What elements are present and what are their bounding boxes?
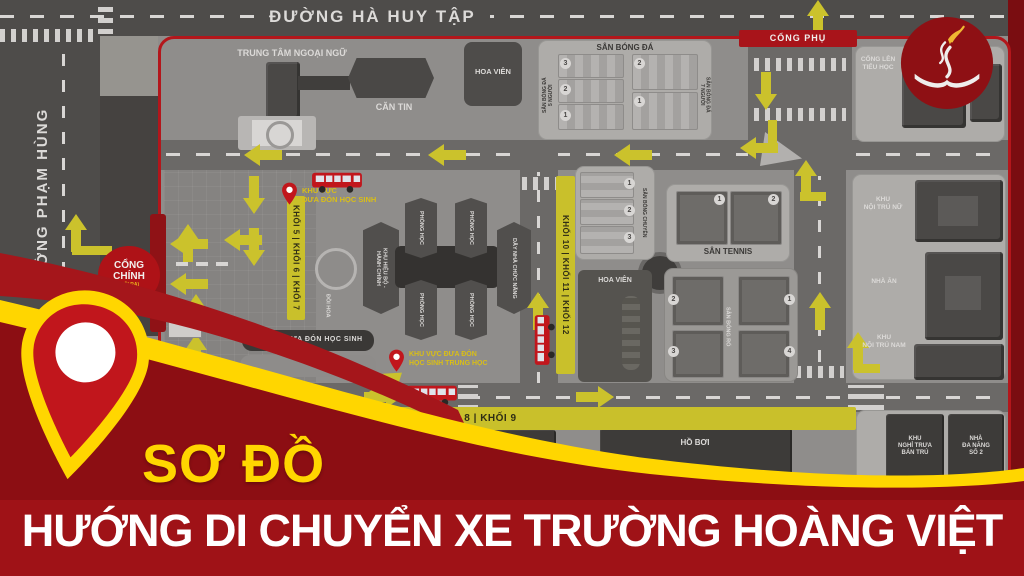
classroom-1-label: PHÒNG HỌC xyxy=(418,211,424,245)
dining-label: NHÀ ĂN xyxy=(860,278,908,286)
gate-secondary-label: CỔNG PHỤ xyxy=(770,33,827,44)
volleyball-court-3-number: 3 xyxy=(624,232,635,243)
soccer-field-5c-number: 1 xyxy=(560,110,571,121)
classroom-building-2: PHÒNG HỌC xyxy=(455,198,487,258)
crosswalk-left-street xyxy=(0,29,96,42)
crosswalk-road-center xyxy=(522,177,556,190)
banner-khoi-8-9-label: KHỐI 8 | KHỐI 9 xyxy=(434,413,517,424)
school-bus-1 xyxy=(311,170,363,194)
admin-office-label: KHU HIỆU BỘ - HÀNH CHÍNH xyxy=(375,248,388,288)
footer-subtitle: HƯỚNG DI CHUYỂN XE TRƯỜNG HOÀNG VIỆT xyxy=(0,505,1024,557)
soccer-5-label: SÂN BÓNG ĐÁ 5 NGƯỜI xyxy=(543,56,555,134)
nap-area-label: KHU NGHỈ TRƯA BÁN TRÚ xyxy=(886,436,944,457)
crosswalk-road-right xyxy=(796,366,844,378)
soccer-field-5a-number: 3 xyxy=(560,58,571,69)
crosswalk-gate2-b xyxy=(754,108,846,121)
gate-main-sublabel: (LỐI RA) xyxy=(119,283,139,288)
location-pin-icon xyxy=(282,183,297,205)
gate-main-label-2: CHÍNH xyxy=(113,272,145,283)
admin-entrance-ring xyxy=(266,121,294,149)
street-name-top: ĐƯỜNG HÀ HUY TẬP xyxy=(255,5,490,29)
flower-garden-mid xyxy=(578,270,652,382)
canteen-connector xyxy=(298,76,350,90)
classroom-4-label: PHÒNG HỌC xyxy=(468,293,474,327)
basketball-court-tr xyxy=(738,276,790,326)
dining-court xyxy=(945,276,981,310)
soccer-7-label: SÂN BÓNG ĐÁ 7 NGƯỜI xyxy=(698,56,710,134)
pickup-pin-2 xyxy=(388,348,405,374)
flower-hill-label: ĐỒI HOA xyxy=(324,288,330,324)
canteen-building xyxy=(348,58,434,98)
guard-room-label: PHÒNG BẢO VỆ xyxy=(168,315,200,325)
school-logo xyxy=(898,14,996,112)
classroom-2-label: PHÒNG HỌC xyxy=(468,211,474,245)
flower-garden-mid-label: HOA VIÊN xyxy=(580,277,650,285)
bus-house-label: NHÀ XE ĐƯA ĐÓN HỌC SINH xyxy=(253,336,362,344)
multi-hall-1-building xyxy=(332,430,556,470)
admin-office-building: KHU HIỆU BỘ - HÀNH CHÍNH xyxy=(363,222,399,314)
soccer-field-7a-number: 2 xyxy=(634,58,645,69)
basketball-court-br xyxy=(738,330,790,378)
basketball-court-tr-number: 1 xyxy=(784,294,795,305)
tennis-court-2-number: 2 xyxy=(768,194,779,205)
canteen-label: CĂN TIN xyxy=(364,102,424,113)
soccer-field-5b-number: 2 xyxy=(560,84,571,95)
pickup-area-2-label: KHU VỰC ĐƯA ĐÓN HỌC SINH TRUNG HỌC xyxy=(409,351,529,369)
basketball-court-tl-number: 2 xyxy=(668,294,679,305)
boys-dorm-building xyxy=(914,344,1004,380)
tennis-label: SÂN TENNIS xyxy=(676,247,780,256)
banner-khoi-8-9: KHỐI 8 | KHỐI 9 xyxy=(386,407,856,430)
street-left-centerline xyxy=(62,50,65,300)
pool-label: HỒ BƠI xyxy=(640,438,750,447)
road-main-dashes xyxy=(166,153,1004,156)
pool-building xyxy=(600,428,792,480)
sidewalk-strip xyxy=(100,36,158,96)
campus-map-infographic: ĐƯỜNG HÀ HUY TẬP ĐƯỜNG PHẠM HÙNG TRUNG T… xyxy=(0,0,1024,576)
flower-hill xyxy=(315,248,357,290)
footer-title: SƠ ĐỒ xyxy=(142,433,325,495)
road-right-dashes xyxy=(818,176,821,362)
basketball-court-bl xyxy=(672,330,724,378)
frame-right xyxy=(1008,0,1024,576)
crosswalk-top-street xyxy=(98,2,113,34)
bus-house-banner: NHÀ XE ĐƯA ĐÓN HỌC SINH xyxy=(242,330,374,351)
planter-strip xyxy=(622,296,640,370)
girls-dorm-label: KHU NỘI TRÚ NỮ xyxy=(856,196,910,211)
soccer-title: SÂN BÓNG ĐÁ xyxy=(560,43,690,52)
tennis-court-1-number: 1 xyxy=(714,194,725,205)
language-center-label: TRUNG TÂM NGOẠI NGỮ xyxy=(212,48,372,59)
language-center-building xyxy=(266,62,300,120)
volleyball-court-2-number: 2 xyxy=(624,205,635,216)
function-row-building: DÃY NHÀ CHỨC NĂNG xyxy=(497,222,531,314)
school-bus-2 xyxy=(532,314,556,366)
school-bus-3 xyxy=(406,383,458,407)
bus-house-platform xyxy=(240,355,376,377)
location-pin-icon xyxy=(389,350,404,372)
flower-garden-top-label: HOA VIÊN xyxy=(464,68,522,77)
volleyball-court-1-number: 1 xyxy=(624,178,635,189)
multi-hall-2-label: NHÀ ĐA NĂNG SỐ 2 xyxy=(948,436,1004,457)
boys-dorm-label: KHU NỘI TRÚ NAM xyxy=(856,334,912,349)
banner-khoi-5-6-7: KHỐI 5 | KHỐI 6 | KHỐI 7 xyxy=(287,196,305,320)
gate-area-dashes xyxy=(176,262,232,266)
crosswalk-gate2-a xyxy=(754,58,846,71)
road-center-dashes xyxy=(537,172,540,410)
soccer-field-7b-number: 1 xyxy=(634,96,645,107)
basketball-court-br-number: 4 xyxy=(784,346,795,357)
volleyball-label: SÂN BÓNG CHUYỀN xyxy=(640,170,646,256)
basketball-court-tl xyxy=(672,276,724,326)
basketball-label: SÂN BÓNG RỔ xyxy=(724,286,730,368)
street-ha-huy-tap xyxy=(0,0,1024,36)
classroom-building-1: PHÒNG HỌC xyxy=(405,198,437,258)
banner-khoi-10-11-12: KHỐI 10 | KHỐI 11 | KHỐI 12 xyxy=(556,176,575,374)
girls-dorm-court xyxy=(938,196,978,226)
multi-hall-1-label: NHÀ ĐA NĂNG SỐ 1 xyxy=(380,440,510,449)
pickup-pin-1 xyxy=(281,181,298,207)
function-row-label: DÃY NHÀ CHỨC NĂNG xyxy=(511,238,517,299)
classroom-building-3: PHÒNG HỌC xyxy=(405,280,437,340)
street-top-centerline xyxy=(0,15,1008,18)
basketball-court-bl-number: 3 xyxy=(668,346,679,357)
classroom-3-label: PHÒNG HỌC xyxy=(418,293,424,327)
classroom-building-4: PHÒNG HỌC xyxy=(455,280,487,340)
gate-secondary: CỔNG PHỤ xyxy=(739,30,857,47)
